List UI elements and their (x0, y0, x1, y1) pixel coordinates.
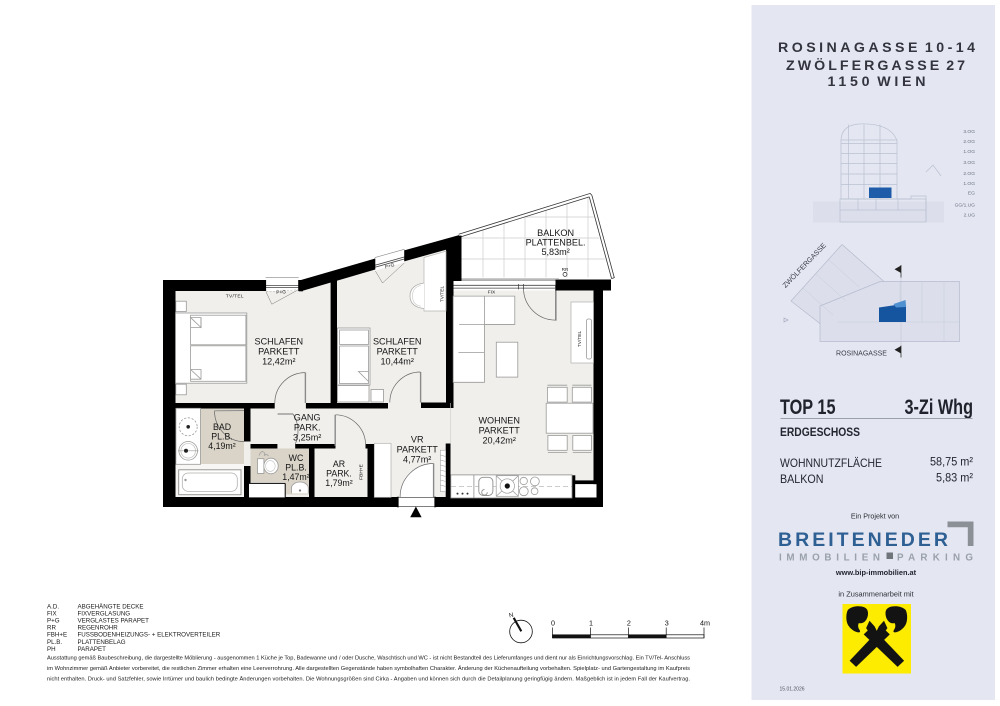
svg-text:2.UG: 2.UG (964, 212, 976, 218)
svg-text:GG/1.UG: GG/1.UG (955, 202, 976, 208)
svg-text:5,83m²: 5,83m² (541, 247, 569, 257)
svg-text:WC: WC (289, 453, 304, 463)
svg-text:20,42m²: 20,42m² (483, 436, 516, 446)
svg-text:RR: RR (47, 625, 56, 632)
svg-text:FBH+E: FBH+E (358, 464, 364, 480)
svg-text:1,47m²: 1,47m² (282, 472, 309, 482)
svg-text:15.01.2026: 15.01.2026 (780, 687, 805, 693)
svg-text:REGENROHR: REGENROHR (78, 625, 119, 632)
svg-text:BALKON: BALKON (537, 228, 574, 238)
svg-text:RR: RR (562, 267, 569, 272)
svg-text:PLATTENBELAG: PLATTENBELAG (78, 639, 126, 646)
svg-text:FIX: FIX (488, 289, 496, 295)
svg-text:SCHLAFEN: SCHLAFEN (255, 337, 304, 347)
svg-text:4,19m²: 4,19m² (208, 441, 235, 451)
svg-text:ROSINAGASSE: ROSINAGASSE (836, 351, 887, 358)
svg-text:1: 1 (589, 619, 593, 628)
svg-text:PARK.: PARK. (294, 423, 321, 433)
svg-text:1.OG: 1.OG (963, 181, 975, 187)
svg-text:2.OG: 2.OG (963, 171, 975, 177)
svg-text:nicht enthalten. Druck- und Sa: nicht enthalten. Druck- und Satzfehler, … (47, 676, 690, 683)
svg-text:ABGEHÄNGTE DECKE: ABGEHÄNGTE DECKE (78, 603, 144, 610)
svg-text:PL.B.: PL.B. (211, 432, 233, 442)
svg-text:www.bip-immobilien.at: www.bip-immobilien.at (835, 568, 917, 577)
svg-text:4,77m²: 4,77m² (403, 454, 431, 464)
svg-text:PARK.: PARK. (326, 469, 352, 479)
svg-text:3,25m²: 3,25m² (293, 433, 321, 443)
svg-text:5,83 m²: 5,83 m² (936, 471, 973, 485)
svg-text:IMMOBILIEN: IMMOBILIEN (779, 553, 880, 564)
svg-text:0: 0 (551, 619, 555, 628)
svg-text:BAD: BAD (213, 422, 231, 432)
svg-text:EG: EG (968, 190, 975, 196)
svg-text:FIX: FIX (47, 610, 57, 617)
svg-text:3: 3 (665, 619, 669, 628)
svg-text:12,42m²: 12,42m² (262, 357, 295, 367)
svg-text:in Zusammenarbeit mit: in Zusammenarbeit mit (838, 590, 913, 599)
svg-text:A.D.: A.D. (47, 603, 59, 610)
svg-text:1.OG: 1.OG (963, 149, 975, 155)
svg-text:VERGLASTES PARAPET: VERGLASTES PARAPET (78, 618, 150, 625)
svg-text:10,44m²: 10,44m² (381, 357, 414, 367)
svg-text:58,75 m²: 58,75 m² (930, 455, 973, 469)
svg-text:3-Zi Whg: 3-Zi Whg (905, 395, 974, 419)
svg-text:GANG: GANG (294, 413, 321, 423)
svg-text:PH: PH (47, 646, 56, 653)
svg-text:Ausstattung gemäß Baubeschreib: Ausstattung gemäß Baubeschreibung, die d… (47, 656, 690, 662)
svg-text:FBH+E: FBH+E (47, 632, 67, 639)
svg-text:TV/TEL: TV/TEL (439, 286, 445, 303)
svg-text:P+G: P+G (276, 289, 286, 296)
svg-text:FIXVERGLASUNG: FIXVERGLASUNG (78, 610, 131, 617)
svg-text:PL.B.: PL.B. (285, 463, 307, 473)
svg-text:PARAPET: PARAPET (78, 646, 107, 653)
svg-text:AR: AR (333, 459, 345, 469)
svg-text:1150WIEN: 1150WIEN (828, 74, 926, 90)
svg-text:Ein Projekt von: Ein Projekt von (851, 512, 899, 521)
svg-text:TOP 15: TOP 15 (780, 395, 836, 419)
svg-text:PARKETT: PARKETT (258, 347, 300, 357)
svg-text:WOHNNUTZFLÄCHE: WOHNNUTZFLÄCHE (780, 456, 882, 470)
svg-text:3.OG: 3.OG (963, 129, 975, 135)
svg-text:2: 2 (627, 619, 631, 628)
svg-text:TV/TEL: TV/TEL (577, 331, 583, 348)
svg-text:im Wohnzimmer gemäß Anbieter v: im Wohnzimmer gemäß Anbieter vorbereitet… (47, 665, 690, 672)
svg-text:BALKON: BALKON (780, 472, 824, 486)
svg-text:PARKETT: PARKETT (397, 444, 439, 454)
svg-text:WOHNEN: WOHNEN (478, 416, 519, 426)
svg-text:3.OG: 3.OG (963, 160, 975, 166)
svg-text:SCHLAFEN: SCHLAFEN (373, 337, 422, 347)
svg-text:TV/TEL: TV/TEL (226, 293, 244, 299)
svg-text:PLATTENBEL.: PLATTENBEL. (526, 237, 586, 247)
svg-text:PL.B.: PL.B. (47, 639, 62, 646)
svg-text:FUSSBODENHEIZUNGS- + ELEKTROVE: FUSSBODENHEIZUNGS- + ELEKTROVERTEILER (78, 632, 221, 639)
svg-text:P+G: P+G (47, 618, 60, 625)
svg-text:2.OG: 2.OG (963, 139, 975, 145)
svg-text:4m: 4m (700, 619, 710, 628)
svg-text:PARKETT: PARKETT (479, 426, 521, 436)
svg-text:BREITENEDER: BREITENEDER (778, 529, 948, 551)
svg-text:PARKETT: PARKETT (377, 347, 419, 357)
svg-text:1,79m²: 1,79m² (325, 478, 352, 488)
svg-text:VR: VR (411, 434, 424, 444)
svg-text:ERDGESCHOSS: ERDGESCHOSS (780, 425, 860, 439)
